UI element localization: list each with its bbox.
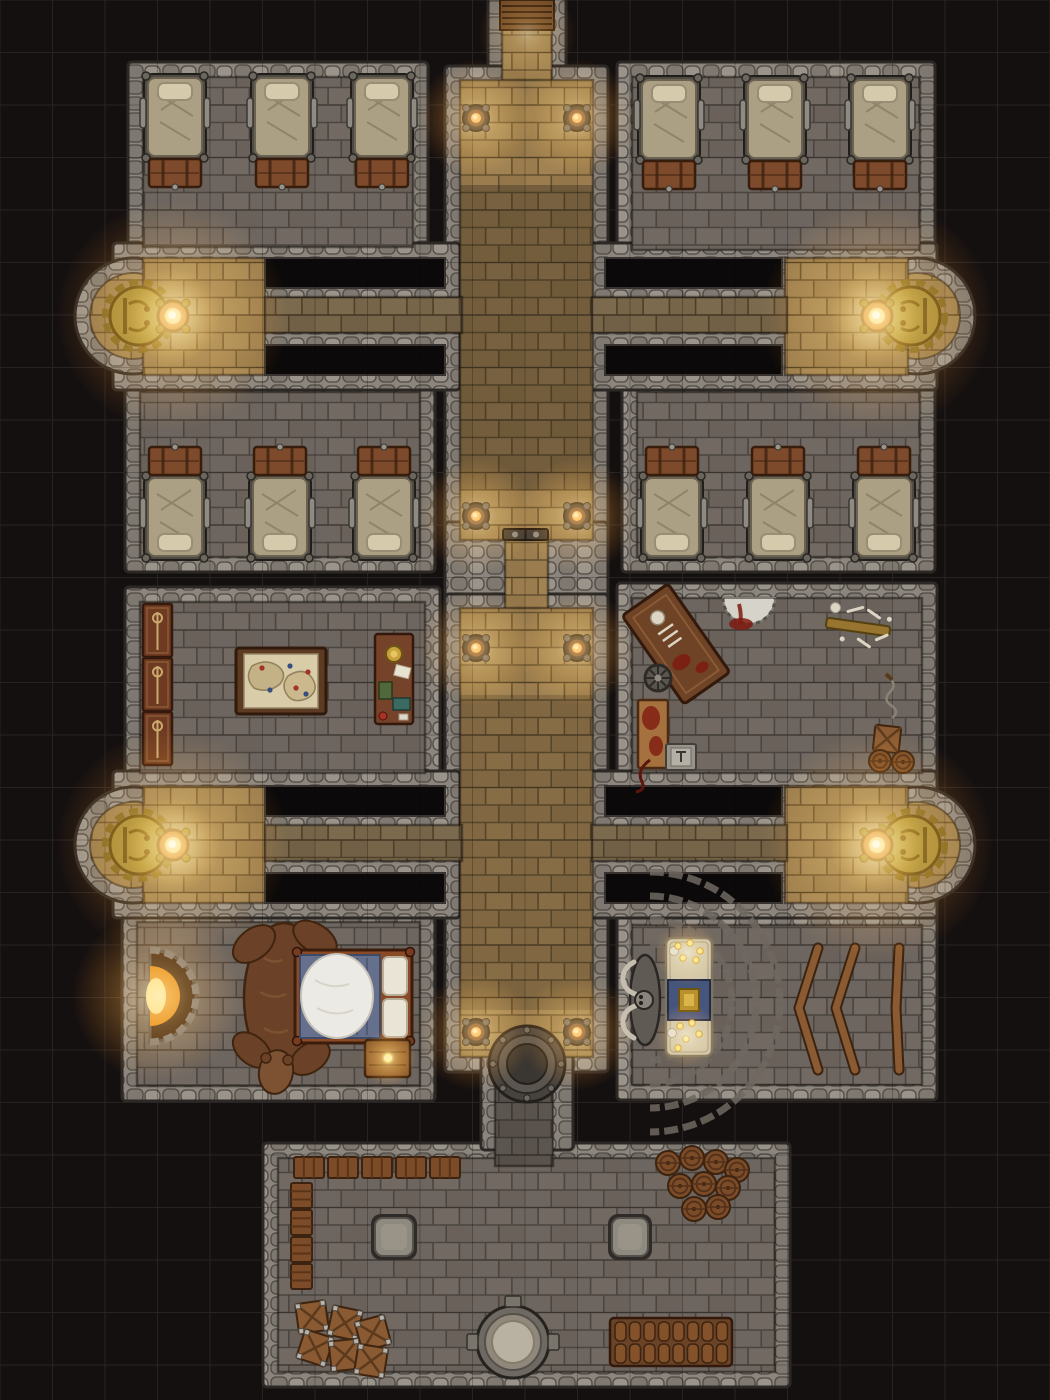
bed bbox=[347, 72, 417, 190]
unexcavated-void bbox=[265, 786, 445, 816]
unexcavated-void bbox=[605, 345, 782, 375]
footlocker-chest bbox=[646, 444, 698, 475]
bed bbox=[740, 74, 810, 192]
bed bbox=[140, 444, 210, 562]
shadow-overlay bbox=[460, 695, 593, 1010]
supply-crate bbox=[291, 1183, 312, 1208]
bed bbox=[849, 444, 919, 562]
spiked-wheel bbox=[645, 665, 671, 691]
supply-crate bbox=[291, 1237, 312, 1262]
supply-crate bbox=[291, 1210, 312, 1235]
bed bbox=[634, 74, 704, 192]
footlocker-chest bbox=[854, 161, 906, 192]
supply-crate bbox=[362, 1157, 392, 1178]
light-glow bbox=[125, 268, 221, 364]
barrel bbox=[656, 1151, 680, 1175]
bed bbox=[140, 72, 210, 190]
unexcavated-void bbox=[265, 345, 445, 375]
unexcavated-void bbox=[605, 786, 782, 816]
supply-crate bbox=[291, 1264, 312, 1289]
keg-rack bbox=[610, 1318, 732, 1366]
light-glow bbox=[418, 458, 534, 574]
supply-crate bbox=[294, 1157, 324, 1178]
dungeon-battlemap bbox=[0, 0, 1050, 1400]
light-glow bbox=[829, 268, 925, 364]
se-connector-floor bbox=[592, 825, 787, 861]
weapon-cabinet bbox=[143, 604, 172, 657]
footlocker-chest bbox=[356, 159, 408, 190]
light-glow bbox=[125, 797, 221, 893]
double-bed bbox=[293, 948, 415, 1046]
light-glow bbox=[418, 974, 534, 1090]
study-desk bbox=[375, 634, 413, 724]
light-glow bbox=[655, 1004, 719, 1068]
shadow-overlay bbox=[460, 185, 593, 490]
stone-table bbox=[371, 1214, 417, 1260]
supply-crate bbox=[430, 1157, 460, 1178]
bed bbox=[349, 444, 419, 562]
bed bbox=[743, 444, 813, 562]
light-glow bbox=[519, 974, 635, 1090]
crate bbox=[295, 1300, 329, 1334]
footlocker-chest bbox=[858, 444, 910, 475]
footlocker-chest bbox=[749, 161, 801, 192]
light-glow bbox=[519, 590, 635, 706]
footlocker-chest bbox=[149, 444, 201, 475]
unexcavated-void bbox=[265, 873, 445, 903]
barrel bbox=[668, 1174, 692, 1198]
footlocker-chest bbox=[358, 444, 410, 475]
light-glow bbox=[73, 911, 243, 1081]
footlocker-chest bbox=[643, 161, 695, 192]
footlocker-chest bbox=[254, 444, 306, 475]
bed bbox=[247, 72, 317, 190]
weapon-cabinet bbox=[143, 658, 172, 711]
stone-table bbox=[608, 1214, 652, 1260]
prayer-bench bbox=[896, 948, 899, 1070]
sw-connector-floor bbox=[265, 825, 462, 861]
footlocker-chest bbox=[256, 159, 308, 190]
crate bbox=[354, 1344, 388, 1378]
barrel bbox=[682, 1197, 706, 1221]
bed bbox=[637, 444, 707, 562]
barrel bbox=[706, 1195, 730, 1219]
bed bbox=[845, 74, 915, 192]
light-glow bbox=[655, 921, 719, 985]
footlocker-chest bbox=[752, 444, 804, 475]
light-glow bbox=[829, 797, 925, 893]
barrel bbox=[680, 1146, 704, 1170]
supply-crate bbox=[396, 1157, 426, 1178]
tool-tray bbox=[666, 744, 696, 770]
battlemap-svg bbox=[0, 0, 1050, 1400]
footlocker-chest bbox=[149, 159, 201, 190]
barrel bbox=[692, 1172, 716, 1196]
light-glow bbox=[360, 1030, 416, 1086]
supply-crate bbox=[328, 1157, 358, 1178]
light-glow bbox=[519, 458, 635, 574]
light-glow bbox=[418, 590, 534, 706]
war-map-table bbox=[236, 648, 326, 714]
bed bbox=[245, 444, 315, 562]
